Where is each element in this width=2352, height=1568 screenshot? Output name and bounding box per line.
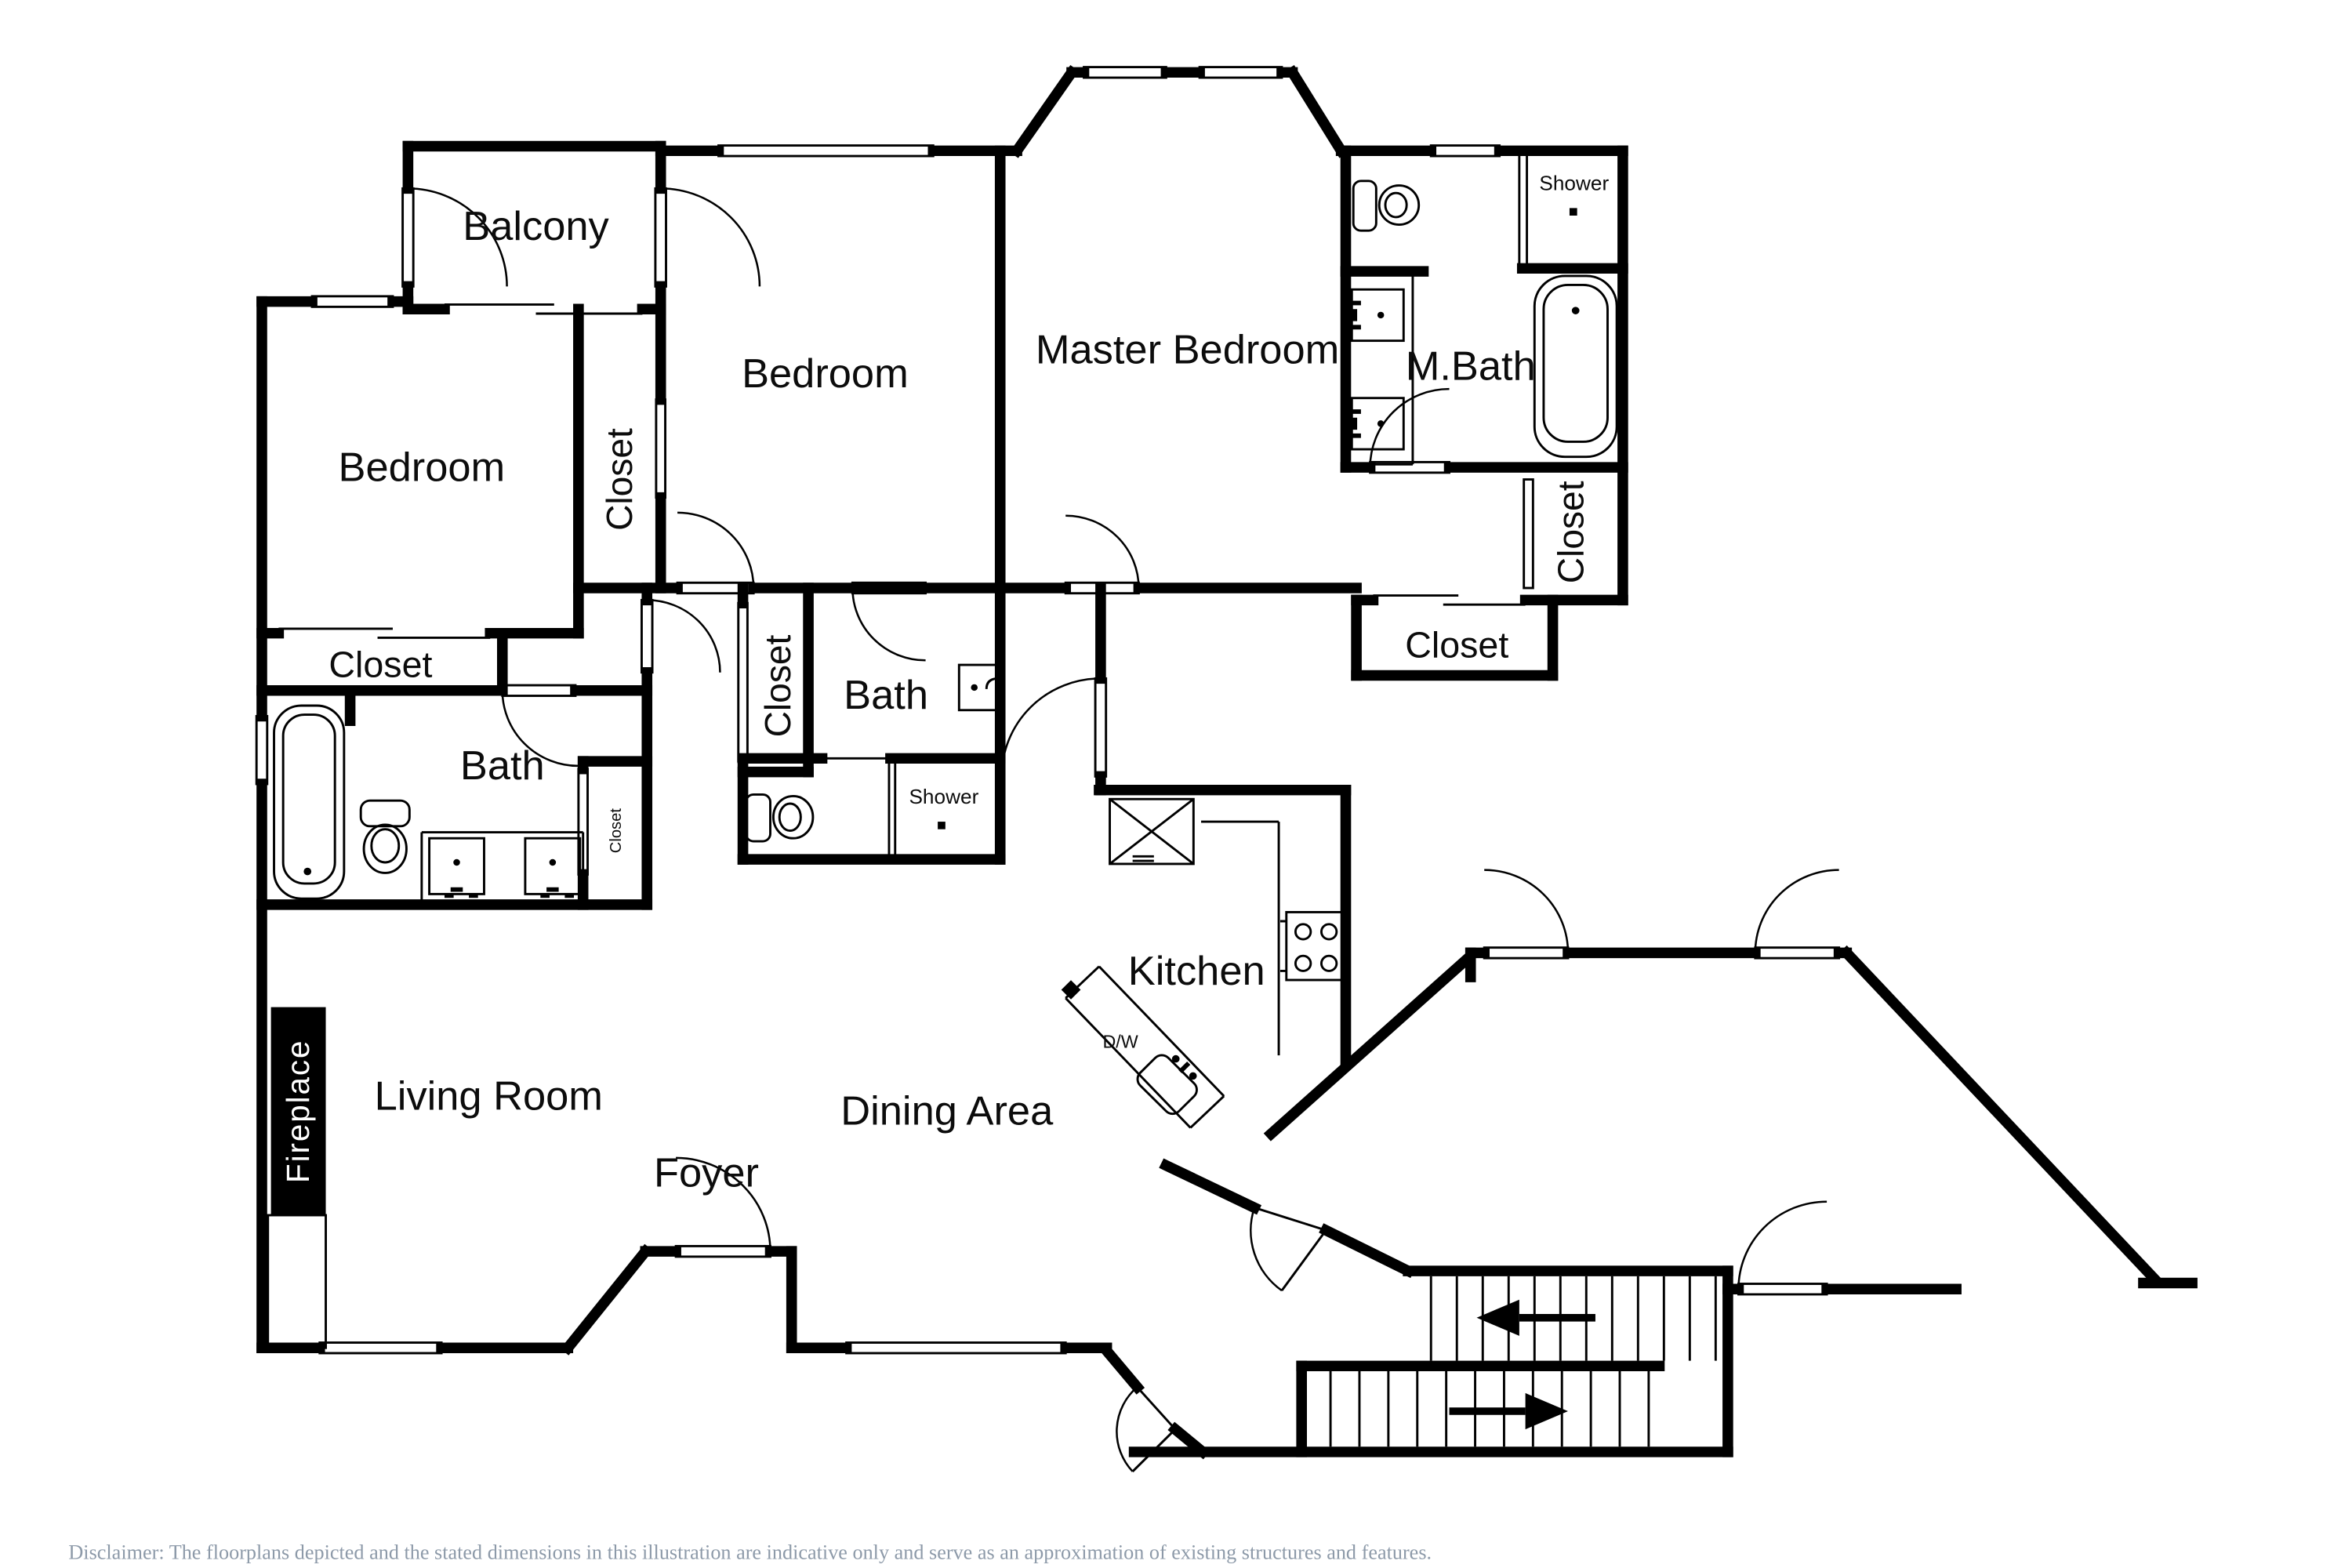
window-mbath-top: [1431, 146, 1499, 156]
wall-horizontal-segments: [262, 72, 2192, 1452]
stove-burner-3: [1295, 956, 1310, 971]
shower-mbath-drain: [1570, 208, 1577, 216]
window-master-bay-left: [1084, 67, 1167, 78]
bathtub-mbath-drain: [1572, 307, 1580, 314]
kitchen-counter-endcap: [1062, 980, 1081, 999]
doors: [278, 188, 1838, 1472]
door-entry-corridor-arc: [1250, 1207, 1282, 1290]
stair-arrow-down: [1450, 1393, 1568, 1429]
label-master-bedroom: Master Bedroom: [1036, 328, 1339, 373]
label-foyer: Foyer: [654, 1151, 759, 1196]
window-bedroom-left-top: [312, 296, 393, 307]
label-bedroom-left: Bedroom: [339, 445, 506, 491]
door-foyer-panel: [676, 1246, 770, 1256]
toilet-bath-left: [361, 800, 409, 873]
sink-left-1: [430, 838, 485, 894]
vanity-mbath: [1346, 274, 1413, 464]
sink-left-2: [525, 838, 580, 894]
door-balcony-right-panel: [655, 188, 666, 286]
sink-mbath-2-drain: [1377, 420, 1385, 426]
door-closet-left-sliders: [278, 629, 490, 638]
door-closet-center-panel: [739, 603, 748, 761]
floorplan-canvas: Balcony Bedroom Bedroom Master Bedroom M…: [0, 0, 2352, 1568]
window-left-wall: [256, 716, 267, 784]
kitchen-sink-spout: [1180, 1063, 1189, 1072]
toilet-bath-left-tank: [361, 800, 409, 826]
door-hall-dining-arc: [1002, 678, 1101, 776]
door-master-arc: [1065, 516, 1138, 588]
door-landing-right-panel: [1755, 948, 1839, 958]
door-hall-left-panel: [641, 600, 652, 672]
toilet-bath-center-bowl-inner: [779, 804, 800, 831]
bathtub-left-drain: [303, 868, 311, 876]
stair-arrow-up: [1476, 1300, 1595, 1336]
door-stair-side-panel: [1738, 1284, 1827, 1294]
window-bedroom-center-top: [719, 146, 934, 156]
label-closet-left: Closet: [328, 644, 432, 685]
sink-bath-center: [959, 665, 998, 710]
bathtub-bath-left: [274, 706, 344, 898]
stove: [1280, 912, 1343, 980]
door-landing-left-panel: [1484, 948, 1568, 958]
door-balcony-left-panel: [403, 188, 414, 286]
walls: [262, 72, 2192, 1452]
label-bedroom-center: Bedroom: [742, 351, 909, 397]
door-entry-corridor-panel: [1282, 1230, 1326, 1290]
label-mbath-shower: Shower: [1539, 171, 1609, 194]
label-bath-left: Bath: [460, 743, 545, 789]
door-entry-gapline: [1137, 1387, 1175, 1429]
sink-mbath-1-drain: [1377, 312, 1385, 318]
door-hall-dining-panel: [1095, 678, 1106, 776]
door-bath-left-panel: [503, 685, 575, 695]
room-labels: Balcony Bedroom Bedroom Master Bedroom M…: [280, 171, 1610, 1196]
window-living-bottom: [320, 1343, 441, 1353]
label-closet-below-master: Closet: [1405, 625, 1508, 666]
label-dishwasher: D/W: [1102, 1032, 1138, 1052]
toilet-bath-center-tank: [746, 794, 770, 841]
window-master-bay-right: [1200, 67, 1282, 78]
label-living-room: Living Room: [375, 1074, 603, 1120]
toilet-mbath: [1353, 181, 1418, 230]
toilet-bath-left-bowl-inner: [372, 829, 399, 862]
door-closet-belowmaster-sliders: [1373, 596, 1525, 605]
label-closet-center-hall: Closet: [757, 634, 798, 737]
toilet-mbath-bowl-inner: [1385, 193, 1406, 217]
window-balcony-slider: [445, 304, 642, 314]
door-landing-left-arc: [1484, 870, 1568, 953]
toilet-bath-center: [746, 794, 812, 841]
shower-center-glass: [889, 758, 895, 859]
door-entry-arc: [1116, 1387, 1137, 1472]
refrigerator: [1110, 799, 1194, 864]
sink-bath-center-drain: [971, 684, 978, 691]
window-dining-bottom: [847, 1343, 1066, 1353]
toilet-bath-left-bowl: [364, 825, 406, 873]
door-closet-betweenbedrooms-panel: [656, 400, 666, 498]
shower-center-drain: [938, 822, 946, 829]
stove-burner-1: [1295, 924, 1310, 939]
floorplan-page: Balcony Bedroom Bedroom Master Bedroom M…: [0, 0, 2352, 1568]
label-fireplace: Fireplace: [280, 1040, 316, 1183]
label-closet-walkin: Closet: [1550, 481, 1591, 583]
bathtub-left-inner: [283, 715, 335, 884]
vanity-bath-left: [422, 833, 583, 905]
wall-vertical-segments: [262, 147, 1728, 1452]
refrigerator-vent: [1133, 856, 1154, 861]
stove-burner-4: [1321, 956, 1336, 971]
door-bedroom-center-arc: [677, 513, 753, 588]
refrigerator-x: [1110, 799, 1194, 864]
door-mbath-arc: [1370, 389, 1450, 467]
label-shower-center: Shower: [909, 785, 978, 808]
label-balcony: Balcony: [463, 204, 608, 249]
label-kitchen: Kitchen: [1128, 949, 1265, 994]
door-balcony-right-arc: [661, 188, 760, 286]
door-stair-side-arc: [1738, 1202, 1827, 1290]
label-closet-between-bedrooms: Closet: [599, 428, 640, 531]
sink-left-2-drain: [550, 859, 557, 866]
door-hall-left-arc: [647, 600, 720, 672]
door-entry-corridor-gapline: [1254, 1207, 1326, 1230]
bathtub-mbath: [1534, 276, 1617, 457]
toilet-mbath-tank: [1353, 181, 1376, 230]
label-bath-center: Bath: [844, 673, 928, 718]
disclaimer-text: Disclaimer: The floorplans depicted and …: [68, 1541, 1432, 1564]
door-landing-right-arc: [1755, 870, 1839, 953]
door-closet-walkin-panel: [1524, 480, 1534, 588]
label-dining-area: Dining Area: [840, 1089, 1053, 1134]
sink-left-1-drain: [453, 859, 460, 866]
fireplace-hearth: [268, 1215, 326, 1348]
kitchen-counter-edge: [1201, 822, 1279, 1055]
door-bath-center-arc: [852, 588, 925, 660]
shower-mbath-glass: [1519, 151, 1527, 268]
label-closet-bath-small: Closet: [608, 808, 625, 854]
label-mbath: M.Bath: [1406, 344, 1536, 390]
stove-burner-2: [1321, 924, 1336, 939]
sink-bath-center-basin: [959, 665, 998, 710]
